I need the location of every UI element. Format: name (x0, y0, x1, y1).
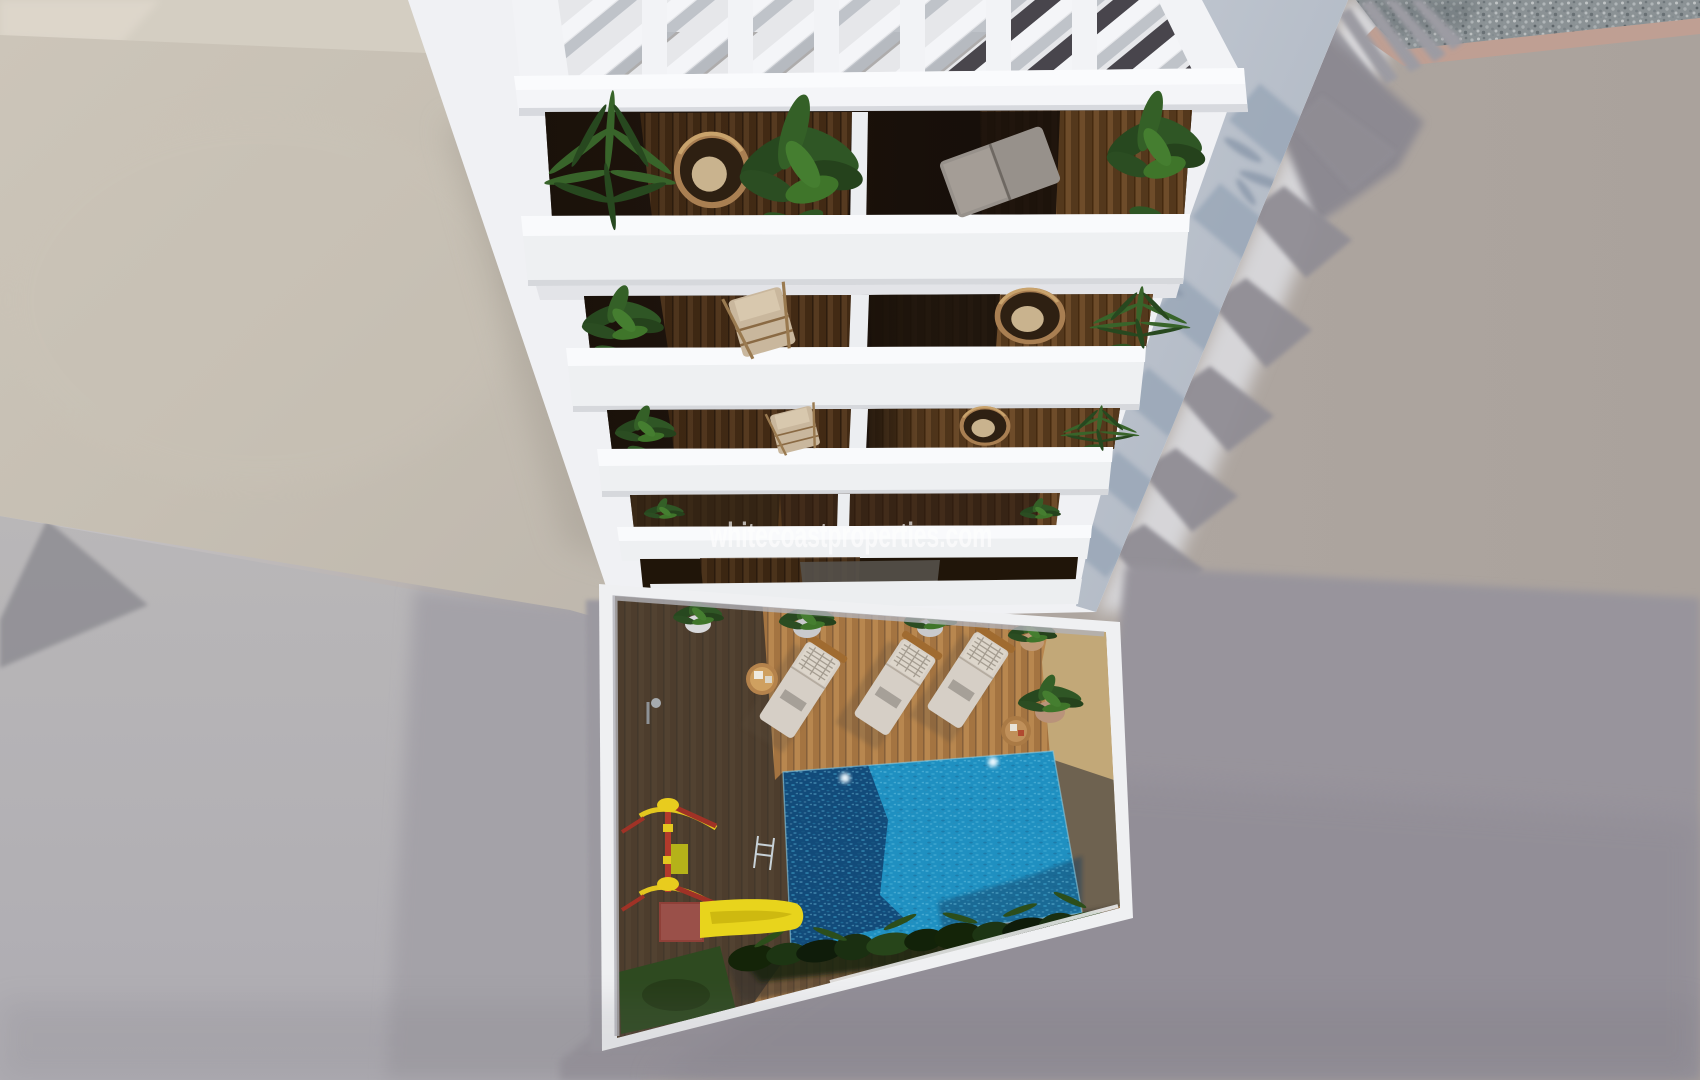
svg-text:whitecoastproperties.com: whitecoastproperties.com (709, 516, 993, 555)
